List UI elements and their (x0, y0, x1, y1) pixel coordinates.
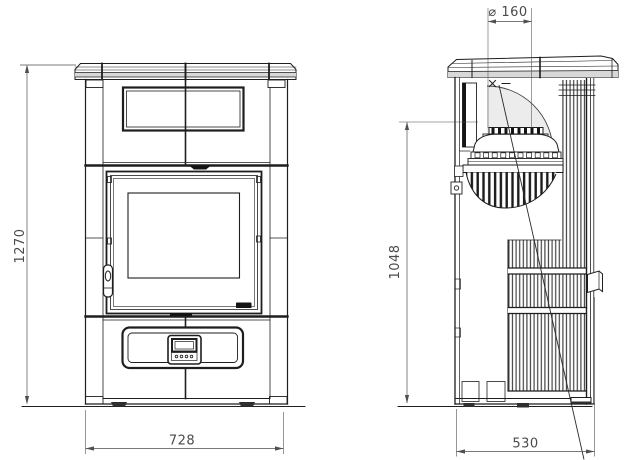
door-handle (104, 265, 113, 297)
foot-bracket-right (270, 397, 288, 405)
corbel-right (268, 80, 285, 88)
side-top-plate (448, 56, 618, 78)
front-drawer-panel (123, 328, 244, 369)
dim-flue-height-label: 1048 (388, 244, 403, 279)
front-view: 1270 (13, 64, 305, 455)
brand-badge (236, 303, 252, 309)
technical-drawing-sheet: 1270 (0, 0, 624, 460)
front-upper-tile-panel (123, 88, 244, 131)
foot-pad (464, 403, 475, 407)
foot-pad (517, 403, 529, 408)
side-view: ⌀ 160 1048 530 (388, 5, 618, 460)
dim-overall-height-label: 1270 (13, 228, 28, 263)
foot-bracket-left (86, 397, 104, 405)
dim-flue-height: 1048 (388, 122, 478, 404)
dim-flue-diameter-label: ⌀ 160 (488, 5, 527, 20)
dim-overall-height: 1270 (13, 65, 76, 405)
door-sill-tab (170, 313, 192, 316)
dim-front-width: 728 (86, 410, 284, 454)
damper-tab (189, 166, 211, 170)
dim-side-depth-label: 530 (512, 437, 538, 452)
stove-dimension-drawing: 1270 (0, 0, 624, 460)
dim-front-width-label: 728 (169, 434, 195, 449)
foot-pad (111, 402, 127, 407)
control-display (168, 336, 201, 365)
stove-door (104, 172, 262, 317)
door-glass (128, 193, 240, 278)
foot-pad (239, 402, 255, 407)
side-door-handle (588, 271, 603, 293)
pivot-bracket (451, 182, 462, 194)
flue-centre-mark (490, 81, 511, 87)
cutaway-fins (466, 173, 556, 209)
corbel-left (86, 80, 103, 88)
